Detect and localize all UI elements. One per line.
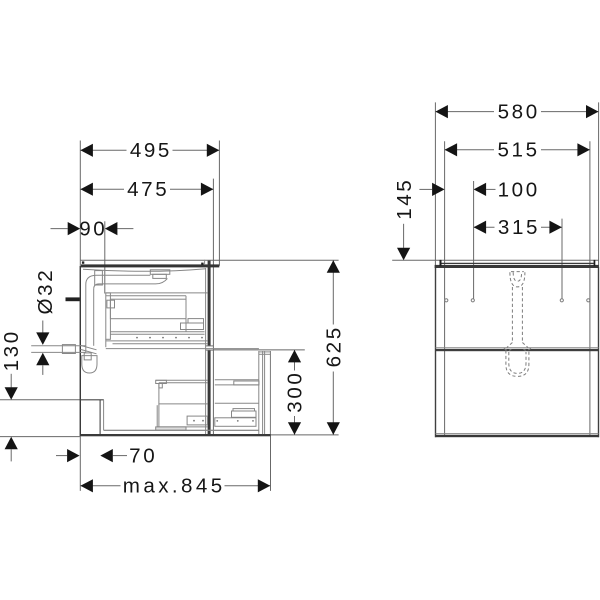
svg-text:515: 515	[498, 139, 540, 162]
svg-text:130: 130	[0, 329, 23, 371]
svg-text:100: 100	[498, 178, 540, 201]
svg-text:495: 495	[130, 139, 172, 162]
svg-text:625: 625	[323, 325, 346, 367]
svg-text:max.845: max.845	[123, 475, 226, 498]
svg-text:475: 475	[127, 178, 169, 201]
svg-text:90: 90	[79, 218, 107, 241]
svg-text:Ø32: Ø32	[34, 268, 57, 315]
svg-text:70: 70	[129, 445, 157, 468]
svg-text:580: 580	[498, 101, 540, 124]
svg-text:315: 315	[498, 216, 540, 239]
svg-text:145: 145	[393, 178, 416, 220]
svg-text:300: 300	[284, 371, 307, 413]
